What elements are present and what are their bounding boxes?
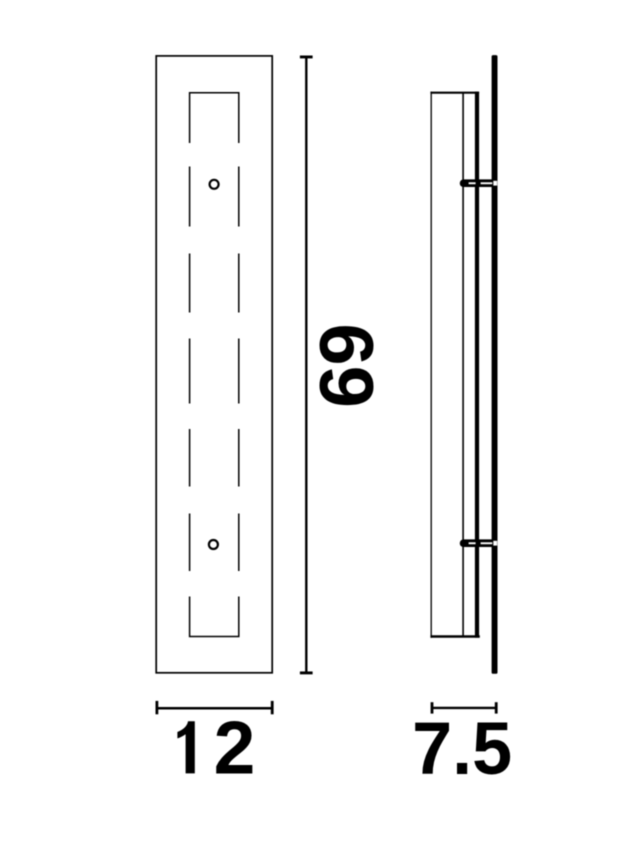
svg-text:7.5: 7.5	[412, 707, 512, 790]
svg-text:2: 2	[214, 705, 256, 789]
svg-text:69: 69	[303, 323, 388, 408]
